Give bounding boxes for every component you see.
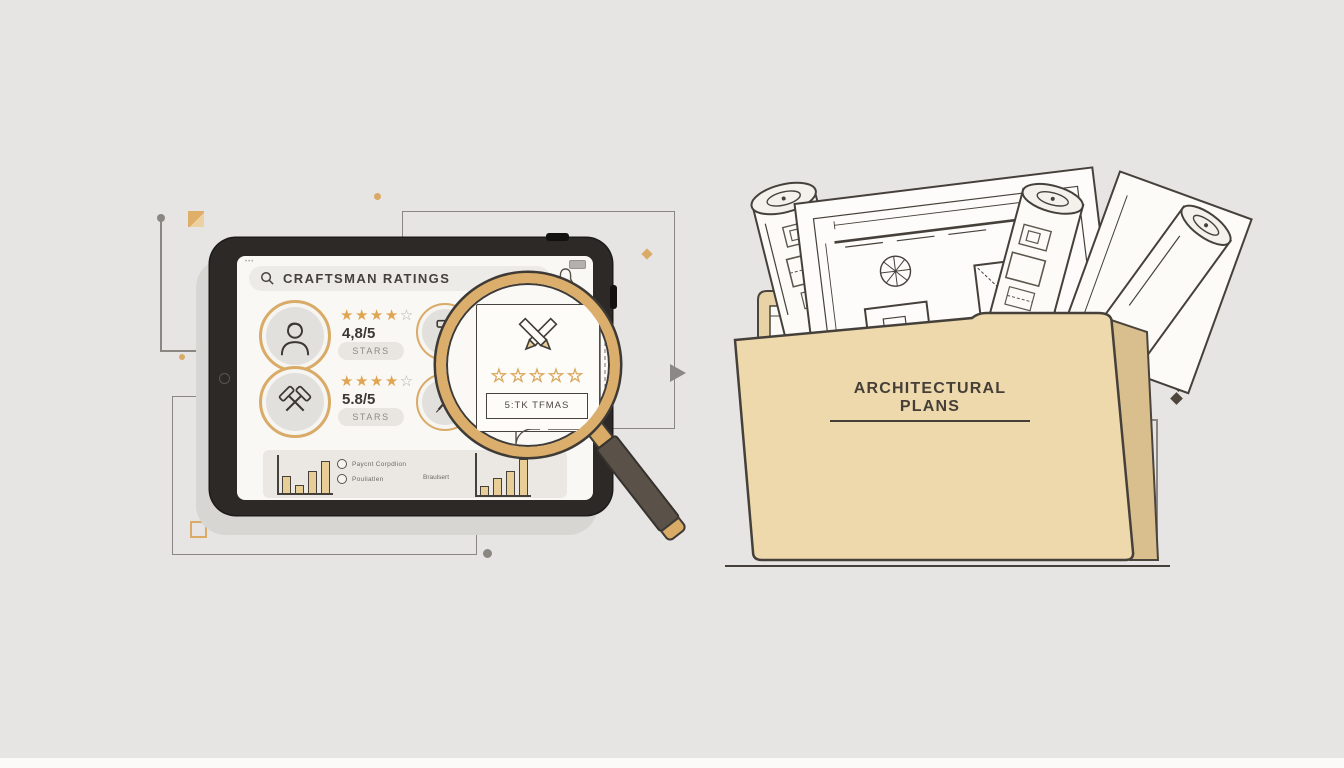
deco-dot-gold-small [179,354,185,360]
star-rating: ★★★★☆ [340,308,415,323]
status-bar-dots: ••• [245,259,254,265]
folder-label: ARCHITECTURAL PLANS [830,380,1030,422]
folder-front [735,313,1133,560]
folder-illustration [700,150,1344,570]
star-empty: ☆ [400,307,415,324]
star-empty: ☆ [400,373,415,390]
magnified-caption: 5:TK TFMAS [486,393,588,419]
tablet-power-button[interactable] [546,233,569,241]
stars-button[interactable]: STARS [338,408,404,426]
option-list: Paycnt Corpdlion Pouliatlen [337,459,406,489]
radio-icon[interactable] [337,459,347,469]
deco-line-vertical [160,221,162,351]
rating-score: 5.8/5 [342,391,375,408]
option-label: Paycnt Corpdlion [352,461,406,468]
option-row[interactable]: Paycnt Corpdlion [337,459,406,469]
deco-dot-gold [374,193,381,200]
folder-label-text: ARCHITECTURAL PLANS [830,380,1030,422]
magnified-card: ☆☆☆☆☆ 5:TK TFMAS [476,304,600,432]
rating-score: 4,8/5 [342,325,375,342]
magnifier-lens: ☆☆☆☆☆ 5:TK TFMAS [436,273,620,457]
crossed-hammers-icon [274,381,316,423]
panel-note: Braulsert [423,474,449,481]
tablet-volume-button[interactable] [610,285,617,309]
mini-bar-chart-right [475,453,531,497]
deco-gold-square [188,211,204,227]
search-input[interactable]: CRAFTSMAN RATINGS [283,271,450,286]
search-icon [260,271,275,286]
mini-bar-chart-left [277,455,333,495]
deco-triangle-icon [670,364,686,382]
crossed-pencils-icon [511,311,565,363]
bottom-edge-strip [0,758,1344,768]
magnified-stars: ☆☆☆☆☆ [477,365,599,388]
option-row[interactable]: Pouliatlen [337,474,406,484]
person-icon [274,315,316,357]
option-label: Pouliatlen [352,476,384,483]
deco-dot-gray-bottom [483,549,492,558]
stars-filled: ★★★★ [340,307,400,324]
magnified-wall-line [598,311,608,421]
stars-filled: ★★★★ [340,373,400,390]
tablet-camera [219,373,230,384]
radio-icon[interactable] [337,474,347,484]
avatar-person[interactable] [259,300,331,372]
avatar-hammers[interactable] [259,366,331,438]
stars-button[interactable]: STARS [338,342,404,360]
summary-panel: Paycnt Corpdlion Pouliatlen Braulsert [263,450,567,498]
star-rating: ★★★★☆ [340,374,415,389]
